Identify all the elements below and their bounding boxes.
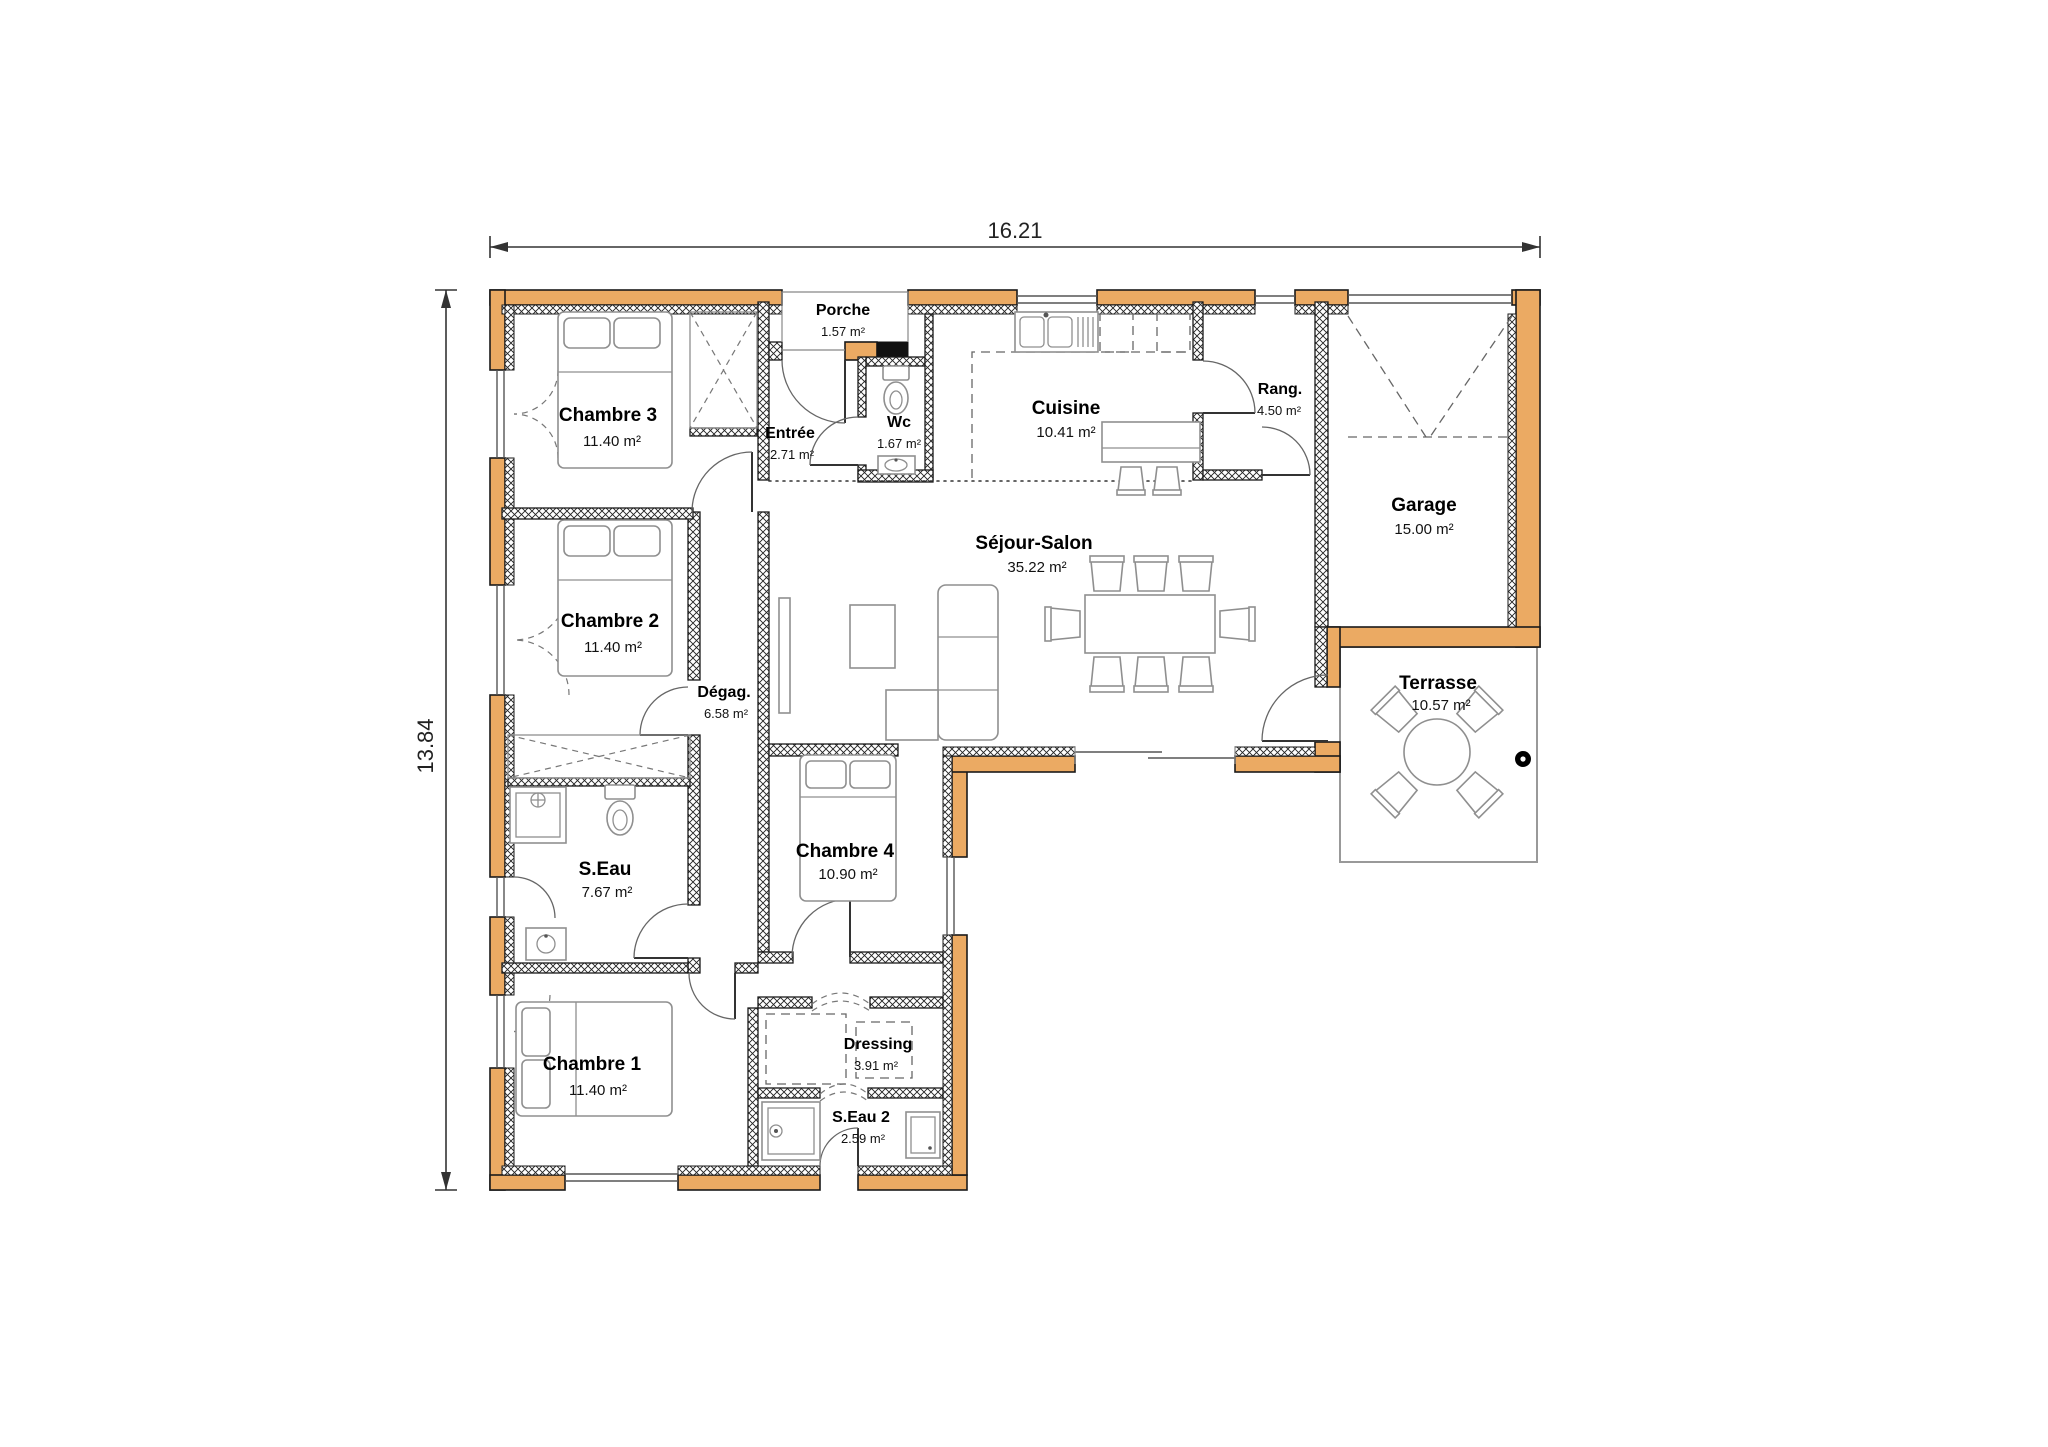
svg-text:7.67 m²: 7.67 m² <box>582 884 633 901</box>
window-bedroom4 <box>947 857 954 935</box>
window-storage <box>1255 296 1295 303</box>
front-door <box>782 360 845 423</box>
room-label-entree: Entrée2.71 m² <box>765 425 815 462</box>
floor-plan-page: Porche1.57 m² Entrée2.71 m² Wc1.67 m² Cu… <box>0 0 2048 1447</box>
svg-text:S.Eau: S.Eau <box>579 859 632 880</box>
svg-text:Séjour-Salon: Séjour-Salon <box>975 533 1092 554</box>
svg-text:2.71 m²: 2.71 m² <box>770 447 815 462</box>
room-label-garage: Garage15.00 m² <box>1391 495 1456 538</box>
toilet-symbol-shower-room <box>605 785 635 835</box>
floor-plan-canvas: Porche1.57 m² Entrée2.71 m² Wc1.67 m² Cu… <box>0 0 2048 1447</box>
svg-text:Dressing: Dressing <box>844 1036 912 1053</box>
svg-text:S.Eau 2: S.Eau 2 <box>832 1109 890 1126</box>
kitchen-sink-symbol <box>1015 312 1098 352</box>
svg-text:10.90 m²: 10.90 m² <box>818 866 877 883</box>
window-bedroom3 <box>497 370 558 458</box>
room-label-dressing: Dressing3.91 m² <box>844 1036 912 1073</box>
room-labels: Porche1.57 m² Entrée2.71 m² Wc1.67 m² Cu… <box>543 302 1477 1146</box>
closet-symbol-bedroom3 <box>690 312 757 428</box>
svg-text:10.57 m²: 10.57 m² <box>1411 697 1470 714</box>
washbasin-symbol-shower-room2 <box>906 1112 940 1158</box>
dining-table-symbol <box>1045 556 1255 692</box>
kitchen-island-symbol <box>1102 422 1200 495</box>
svg-text:Porche: Porche <box>816 302 870 319</box>
svg-text:11.40 m²: 11.40 m² <box>569 1082 627 1099</box>
svg-text:Terrasse: Terrasse <box>1399 673 1477 694</box>
svg-text:2.59 m²: 2.59 m² <box>841 1131 886 1146</box>
shower-symbol-shower-room2 <box>762 1102 820 1160</box>
terrace-light-point-icon <box>1515 751 1531 767</box>
tv-unit-symbol <box>779 598 790 713</box>
dressing-opening-top <box>812 993 870 1011</box>
storage-door-living <box>1262 427 1310 475</box>
svg-text:11.40 m²: 11.40 m² <box>584 639 642 656</box>
svg-text:Chambre 2: Chambre 2 <box>561 611 659 632</box>
room-label-seau2: S.Eau 22.59 m² <box>832 1109 890 1146</box>
svg-text:11.40 m²: 11.40 m² <box>583 433 641 450</box>
storage-door-kitchen <box>1203 361 1255 413</box>
svg-text:13.84: 13.84 <box>413 718 438 773</box>
svg-text:4.50 m²: 4.50 m² <box>1257 403 1302 418</box>
room-label-rangement: Rang.4.50 m² <box>1257 381 1302 418</box>
room-label-degagement: Dégag.6.58 m² <box>697 684 750 721</box>
svg-text:6.58 m²: 6.58 m² <box>704 706 749 721</box>
sliding-bay-window <box>1075 747 1235 764</box>
svg-text:Chambre 4: Chambre 4 <box>796 841 895 862</box>
toilet-symbol-wc <box>883 366 909 414</box>
window-kitchen <box>1017 296 1097 303</box>
closet-symbol-bedroom2 <box>508 735 690 778</box>
room-label-sejour-salon: Séjour-Salon35.22 m² <box>975 533 1092 576</box>
washbasin-symbol-wc <box>878 456 915 474</box>
shower-symbol-shower-room <box>510 787 566 843</box>
svg-text:1.57 m²: 1.57 m² <box>821 324 866 339</box>
dimension-line-top: 16.21 <box>490 218 1540 258</box>
svg-text:Cuisine: Cuisine <box>1032 398 1101 419</box>
svg-text:Entrée: Entrée <box>765 425 815 442</box>
washbasin-symbol-shower-room <box>526 928 566 960</box>
svg-text:10.41 m²: 10.41 m² <box>1036 424 1095 441</box>
garage-door-symbol <box>1348 295 1512 303</box>
bedroom4-door <box>792 899 850 957</box>
svg-text:Chambre 1: Chambre 1 <box>543 1054 642 1075</box>
svg-text:Chambre 3: Chambre 3 <box>559 405 657 426</box>
svg-text:16.21: 16.21 <box>987 218 1042 243</box>
svg-text:Wc: Wc <box>887 414 911 431</box>
room-label-wc: Wc1.67 m² <box>877 414 922 451</box>
sofa-symbol <box>886 585 998 740</box>
coffee-table-symbol <box>850 605 895 668</box>
dimension-line-left: 13.84 <box>413 290 457 1190</box>
dressing-opening-bottom <box>820 1084 868 1101</box>
window-bedroom1-bottom <box>565 1174 678 1181</box>
room-label-cuisine: Cuisine10.41 m² <box>1032 398 1101 441</box>
svg-text:1.67 m²: 1.67 m² <box>877 436 922 451</box>
wc-door <box>810 417 858 465</box>
svg-text:Dégag.: Dégag. <box>697 684 750 701</box>
shower-room-door <box>634 904 688 958</box>
room-label-porche: Porche1.57 m² <box>816 302 870 339</box>
svg-text:Garage: Garage <box>1391 495 1456 516</box>
room-label-terrasse: Terrasse10.57 m² <box>1399 673 1477 714</box>
window-shower-room <box>497 877 555 918</box>
bedroom1-door <box>689 973 735 1019</box>
garage-door-mechanism-symbol <box>1348 316 1512 437</box>
bedroom2-door <box>640 687 688 735</box>
svg-text:3.91 m²: 3.91 m² <box>854 1058 899 1073</box>
svg-text:Rang.: Rang. <box>1258 381 1302 398</box>
bedroom3-door <box>692 452 752 512</box>
room-label-seau: S.Eau7.67 m² <box>579 859 633 901</box>
svg-text:35.22 m²: 35.22 m² <box>1007 559 1066 576</box>
svg-text:15.00 m²: 15.00 m² <box>1394 521 1453 538</box>
